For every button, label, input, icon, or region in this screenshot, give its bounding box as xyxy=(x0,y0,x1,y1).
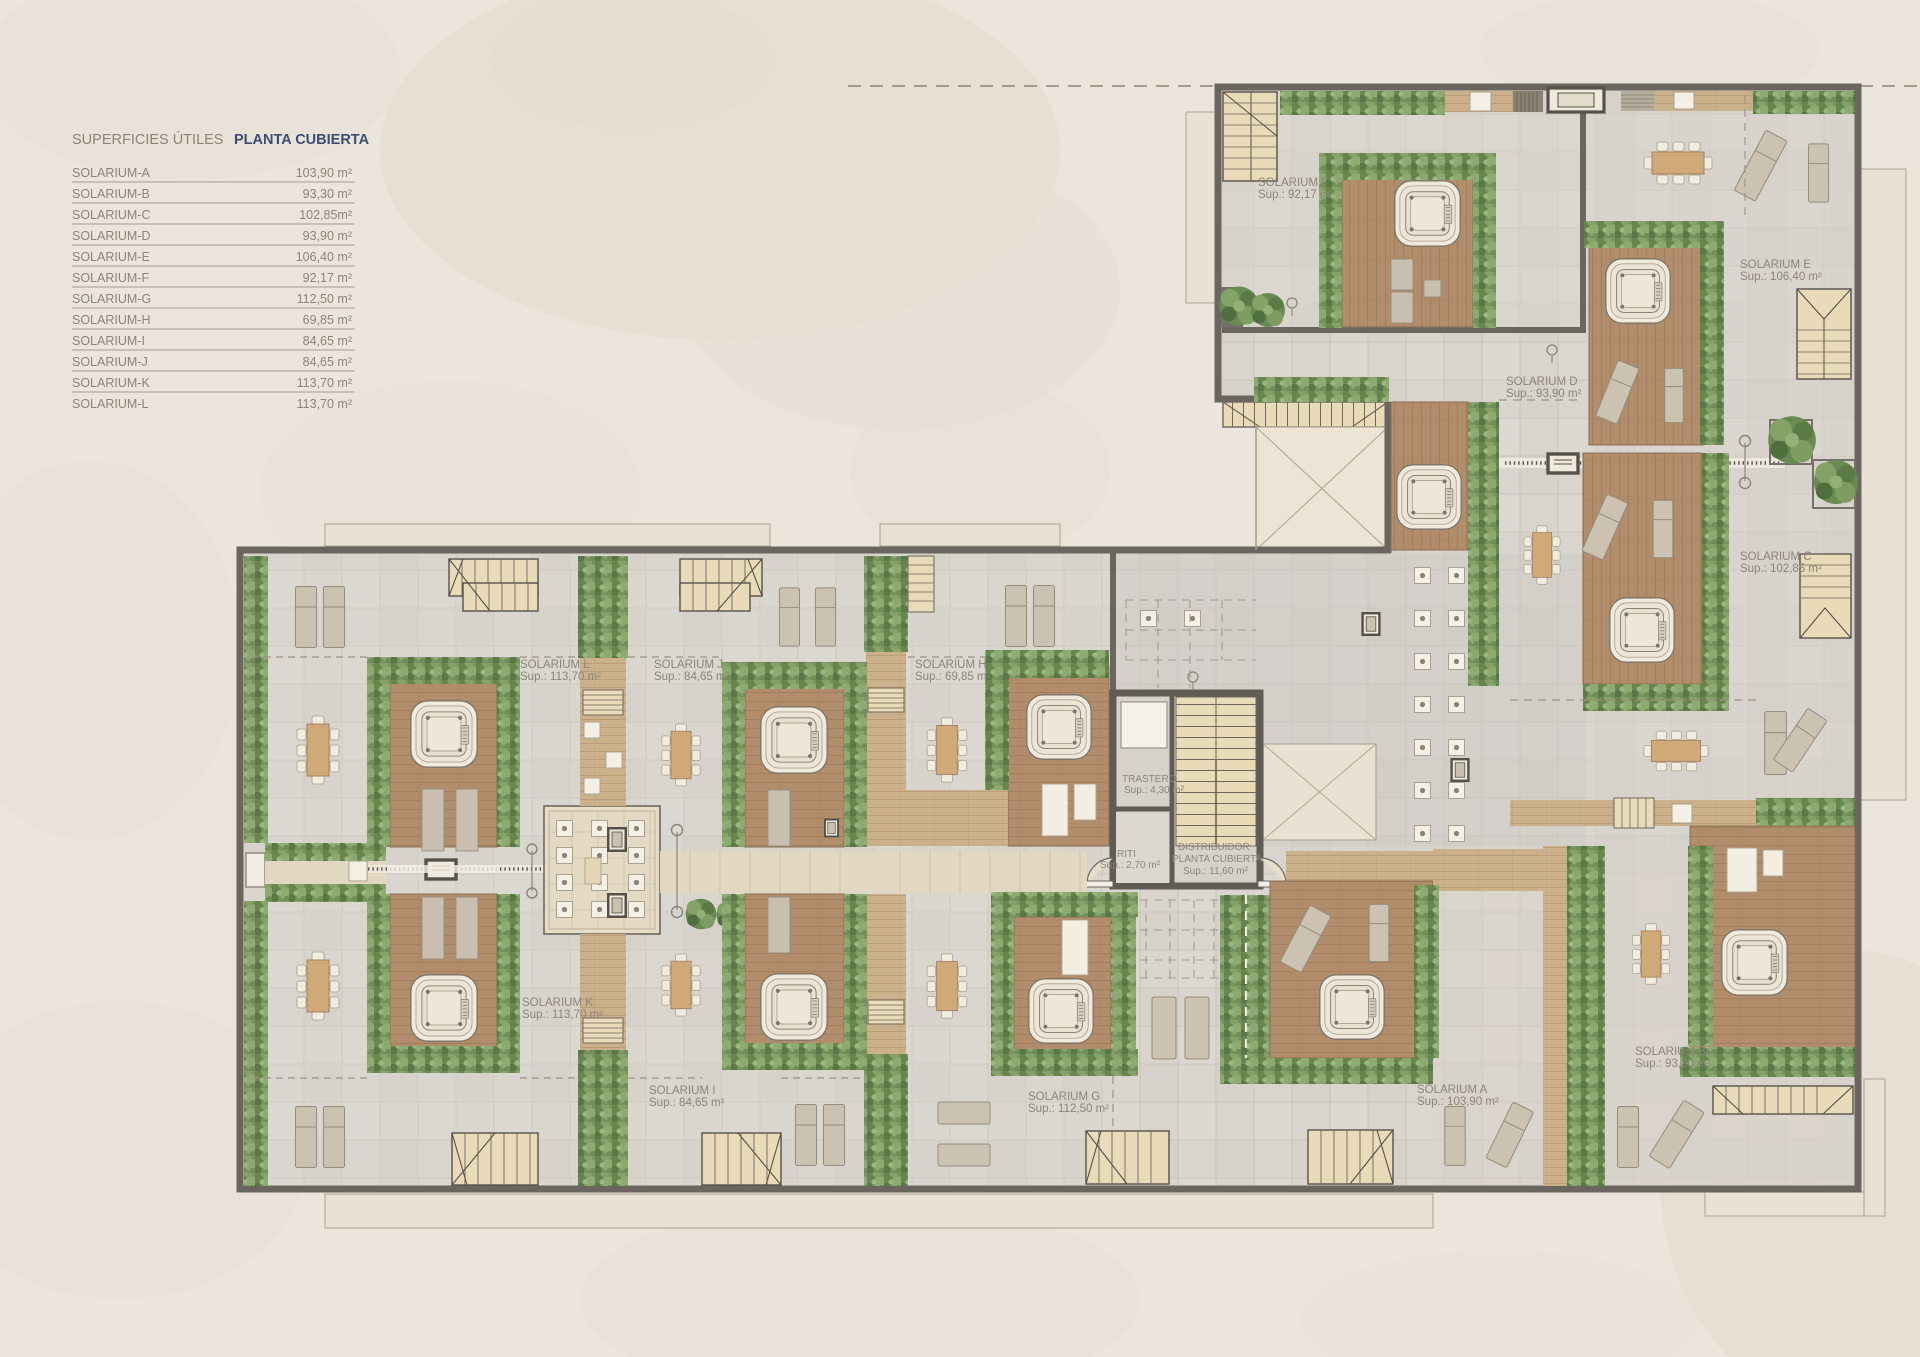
svg-text:113,70 m²: 113,70 m² xyxy=(297,397,352,411)
svg-text:Sup.: 4,30 m²: Sup.: 4,30 m² xyxy=(1124,785,1185,796)
svg-text:SUPERFICIES ÚTILES: SUPERFICIES ÚTILES xyxy=(72,131,223,148)
svg-text:SOLARIUM-L: SOLARIUM-L xyxy=(72,397,148,411)
svg-text:Sup.: 11,60 m²: Sup.: 11,60 m² xyxy=(1183,866,1249,877)
svg-text:Sup.: 69,85 m²: Sup.: 69,85 m² xyxy=(915,671,991,683)
svg-text:SOLARIUM-F: SOLARIUM-F xyxy=(72,271,149,285)
svg-text:69,85 m²: 69,85 m² xyxy=(303,313,352,327)
svg-text:RITI: RITI xyxy=(1117,849,1136,860)
svg-text:113,70 m²: 113,70 m² xyxy=(297,376,352,390)
svg-text:103,90 m²: 103,90 m² xyxy=(296,166,352,180)
svg-text:SOLARIUM-J: SOLARIUM-J xyxy=(72,355,148,369)
svg-text:TRASTERO: TRASTERO xyxy=(1122,774,1177,785)
svg-text:84,65 m²: 84,65 m² xyxy=(303,334,352,348)
svg-text:SOLARIUM-D: SOLARIUM-D xyxy=(72,229,150,243)
svg-text:SOLARIUM C: SOLARIUM C xyxy=(1740,551,1812,563)
svg-text:SOLARIUM K: SOLARIUM K xyxy=(522,997,593,1009)
svg-text:SOLARIUM B: SOLARIUM B xyxy=(1635,1046,1706,1058)
svg-text:Sup.: 113,70 m²: Sup.: 113,70 m² xyxy=(522,1009,603,1021)
svg-text:Sup.: 84,65 m²: Sup.: 84,65 m² xyxy=(654,671,730,683)
svg-text:Sup.: 92,17 m²: Sup.: 92,17 m² xyxy=(1258,189,1334,201)
svg-text:Sup.: 112,50 m²: Sup.: 112,50 m² xyxy=(1028,1103,1109,1115)
svg-text:SOLARIUM-I: SOLARIUM-I xyxy=(72,334,145,348)
svg-text:SOLARIUM-K: SOLARIUM-K xyxy=(72,376,150,390)
svg-text:102,85m²: 102,85m² xyxy=(299,208,352,222)
svg-text:SOLARIUM E: SOLARIUM E xyxy=(1740,259,1811,271)
svg-text:PLANTA CUBIERTA: PLANTA CUBIERTA xyxy=(234,132,370,148)
svg-text:Sup.: 102,85 m²: Sup.: 102,85 m² xyxy=(1740,563,1822,575)
svg-text:Sup.: 93,90 m²: Sup.: 93,90 m² xyxy=(1506,388,1582,400)
svg-text:106,40 m²: 106,40 m² xyxy=(296,250,352,264)
svg-text:Sup.: 113,70 m²: Sup.: 113,70 m² xyxy=(520,671,601,683)
svg-text:SOLARIUM-H: SOLARIUM-H xyxy=(72,313,150,327)
svg-text:SOLARIUM L: SOLARIUM L xyxy=(520,659,590,671)
svg-text:92,17 m²: 92,17 m² xyxy=(303,271,352,285)
svg-text:SOLARIUM-C: SOLARIUM-C xyxy=(72,208,150,222)
svg-text:112,50 m²: 112,50 m² xyxy=(297,292,352,306)
svg-text:SOLARIUM-G: SOLARIUM-G xyxy=(72,292,151,306)
svg-text:SOLARIUM H: SOLARIUM H xyxy=(915,659,987,671)
svg-text:Sup.: 106,40 m²: Sup.: 106,40 m² xyxy=(1740,271,1822,283)
svg-text:Sup.: 103,90 m²: Sup.: 103,90 m² xyxy=(1417,1096,1499,1108)
svg-text:84,65 m²: 84,65 m² xyxy=(303,355,352,369)
svg-text:SOLARIUM I: SOLARIUM I xyxy=(649,1085,715,1097)
svg-text:SOLARIUM D: SOLARIUM D xyxy=(1506,376,1578,388)
svg-text:SOLARIUM J: SOLARIUM J xyxy=(654,659,723,671)
svg-text:SOLARIUM A: SOLARIUM A xyxy=(1417,1084,1488,1096)
svg-text:Sup.: 93,30 m²: Sup.: 93,30 m² xyxy=(1635,1058,1711,1070)
svg-text:PLANTA CUBIERTA: PLANTA CUBIERTA xyxy=(1172,854,1262,865)
svg-text:93,30 m²: 93,30 m² xyxy=(303,187,352,201)
svg-text:SOLARIUM-A: SOLARIUM-A xyxy=(72,166,150,180)
svg-text:Sup.: 2,70 m²: Sup.: 2,70 m² xyxy=(1100,860,1161,871)
svg-text:SOLARIUM G: SOLARIUM G xyxy=(1028,1091,1100,1103)
svg-text:93,90 m²: 93,90 m² xyxy=(303,229,352,243)
svg-text:SOLARIUM-E: SOLARIUM-E xyxy=(72,250,150,264)
svg-text:Sup.: 84,65 m²: Sup.: 84,65 m² xyxy=(649,1097,725,1109)
svg-text:SOLARIUM-B: SOLARIUM-B xyxy=(72,187,150,201)
svg-text:DISTRIBUIDOR: DISTRIBUIDOR xyxy=(1178,842,1250,853)
svg-text:SOLARIUM F: SOLARIUM F xyxy=(1258,177,1328,189)
